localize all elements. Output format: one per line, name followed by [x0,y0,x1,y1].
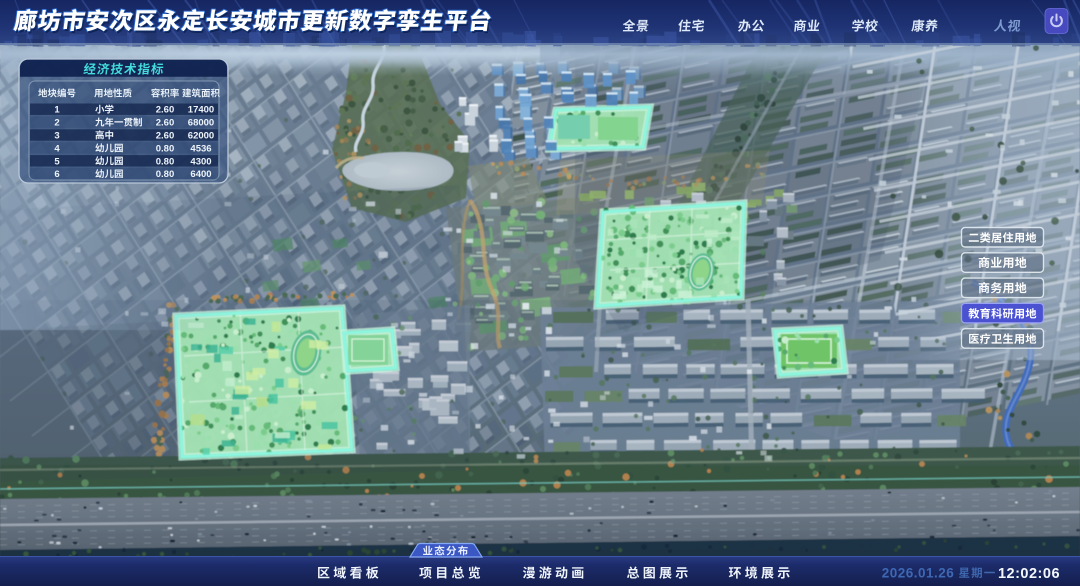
svg-text:4536: 4536 [190,143,211,154]
svg-text:2026.01.26: 2026.01.26 [882,566,955,581]
svg-text:17400: 17400 [188,105,214,116]
svg-text:3: 3 [54,131,59,142]
svg-text:0.80: 0.80 [156,143,175,154]
svg-text:62000: 62000 [188,131,214,142]
svg-text:4300: 4300 [190,156,211,167]
svg-text:4: 4 [54,143,60,154]
svg-text:12:02:06: 12:02:06 [998,566,1060,582]
svg-text:6: 6 [54,169,59,180]
svg-text:2.60: 2.60 [156,131,175,142]
svg-text:68000: 68000 [188,118,214,129]
svg-text:2.60: 2.60 [156,118,175,129]
svg-text:0.80: 0.80 [156,169,175,180]
svg-text:2: 2 [54,118,59,129]
svg-text:2.60: 2.60 [156,105,175,116]
svg-text:0.80: 0.80 [156,156,175,167]
svg-text:5: 5 [54,156,60,167]
svg-text:1: 1 [54,105,60,116]
svg-text:6400: 6400 [190,169,211,180]
